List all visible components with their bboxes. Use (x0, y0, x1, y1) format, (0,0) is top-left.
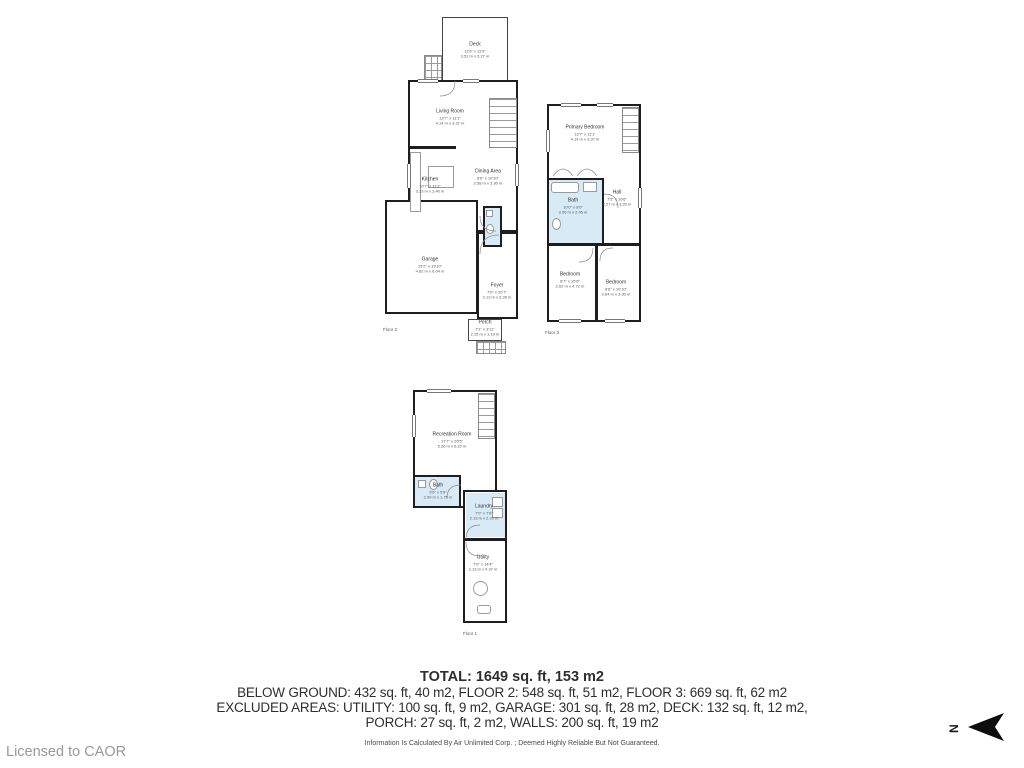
room-dims-imperial: 10'7" x 11'2" (416, 183, 445, 188)
floor1-plan: Recreation Room 17'7" x 20'5" 5.36 m x 6… (405, 385, 510, 643)
room-dims-metric: 2.27 m x 3.20 m (603, 201, 632, 206)
powder-toilet (486, 224, 494, 234)
area-summary: TOTAL: 1649 sq. ft, 153 m2 BELOW GROUND:… (0, 669, 1024, 730)
north-arrow-icon: N (946, 706, 1010, 754)
room-dims-metric: 2.13 m x 6.28 m (483, 294, 512, 299)
disclaimer-text: Information Is Calculated By Air Unlimit… (0, 740, 1024, 747)
floor1-label: Floor 1 (463, 631, 477, 636)
room-label-bath1: Bath 9'6" x 5'9" 2.90 m x 1.75 m (424, 483, 453, 500)
room-dims-imperial: 11'6" x 11'9" (461, 48, 490, 53)
window (605, 319, 625, 323)
floor2-plan: Deck 11'6" x 11'9" 3.51 m x 3.27 m Livin… (383, 14, 533, 356)
porch-steps (476, 341, 506, 354)
interior-wall (463, 538, 507, 541)
room-label-foyer: Foyer 7'0" x 20'7" 2.13 m x 6.28 m (483, 283, 512, 300)
window (559, 319, 581, 323)
floorplan-page: Deck 11'6" x 11'9" 3.51 m x 3.27 m Livin… (0, 0, 1024, 768)
bathtub (551, 182, 579, 193)
window (597, 103, 613, 107)
room-dims-imperial: 13'7" x 11'1" (436, 115, 465, 120)
furnace (473, 581, 488, 596)
powder-sink (486, 210, 493, 217)
room-name: Bedroom (556, 272, 585, 279)
room-dims-metric: 4.14 m x 3.37 m (566, 136, 605, 141)
room-label-garage: Garage 15'2" x 19'10" 4.62 m x 6.04 m (416, 257, 445, 274)
floor1-stairs (478, 393, 495, 439)
floor3-plan: Primary Bedroom 13'7" x 11'1" 4.14 m x 3… (545, 100, 645, 342)
window (515, 164, 519, 186)
room-label-recreation: Recreation Room 17'7" x 20'5" 5.36 m x 6… (433, 432, 472, 449)
room-dims-imperial: 15'2" x 19'10" (416, 263, 445, 268)
window (418, 79, 438, 83)
window (463, 79, 479, 83)
room-label-hall: Hall 7'5" x 10'6" 2.27 m x 3.20 m (603, 190, 632, 207)
room-name: Living Room (436, 109, 465, 116)
room-label-bedroom2: Bedroom 8'8" x 10'10" 2.64 m x 3.30 m (602, 280, 631, 297)
room-name: Recreation Room (433, 432, 472, 439)
window (546, 130, 550, 152)
room-dims-metric: 2.13 m x 2.29 m (470, 515, 499, 520)
room-name: Primary Bedroom (566, 125, 605, 132)
room-dims-metric: 4.62 m x 6.04 m (416, 268, 445, 273)
room-name: Bedroom (602, 280, 631, 287)
room-dims-metric: 4.14 m x 3.37 m (436, 120, 465, 125)
room-name: Dining Area (474, 169, 503, 176)
licensed-text: Licensed to CAOR (6, 744, 126, 760)
window (427, 389, 451, 393)
room-label-living: Living Room 13'7" x 11'1" 4.14 m x 3.37 … (436, 109, 465, 126)
room-dims-metric: 2.13 m x 4.37 m (469, 566, 498, 571)
room-label-deck: Deck 11'6" x 11'9" 3.51 m x 3.27 m (461, 42, 490, 59)
room-label-dining: Dining Area 8'6" x 10'10" 2.58 m x 3.30 … (474, 169, 503, 186)
floor3-label: Floor 3 (545, 330, 559, 335)
summary-total: TOTAL: 1649 sq. ft, 153 m2 (0, 669, 1024, 685)
room-dims-metric: 3.23 m x 3.40 m (416, 188, 445, 193)
window (561, 103, 581, 107)
floor2-stairs (489, 98, 517, 148)
room-label-porch: Porch 7'1" x 3'11" 2.15 m x 1.19 m (471, 320, 500, 337)
room-dims-imperial: 8'8" x 10'10" (602, 286, 631, 291)
summary-line2: BELOW GROUND: 432 sq. ft, 40 m2, FLOOR 2… (0, 685, 1024, 700)
bath-sink (583, 182, 597, 192)
north-label: N (947, 724, 961, 733)
room-dims-metric: 2.58 m x 3.30 m (474, 180, 503, 185)
water-heater (477, 605, 491, 614)
room-label-utility: Utility 7'0" x 14'4" 2.13 m x 4.37 m (469, 555, 498, 572)
room-label-bedroom1: Bedroom 8'7" x 15'6" 2.62 m x 4.72 m (556, 272, 585, 289)
interior-wall (595, 245, 598, 322)
room-dims-metric: 3.51 m x 3.27 m (461, 53, 490, 58)
room-dims-metric: 5.36 m x 6.22 m (433, 443, 472, 448)
room-dims-metric: 2.64 m x 3.30 m (602, 291, 631, 296)
room-dims-metric: 2.90 m x 1.75 m (424, 494, 453, 499)
room-dims-metric: 2.15 m x 1.19 m (471, 331, 500, 336)
floor3-stairs (622, 107, 639, 153)
room-dims-imperial: 8'6" x 10'10" (474, 175, 503, 180)
summary-line4: PORCH: 27 sq. ft, 2 m2, WALLS: 200 sq. f… (0, 715, 1024, 730)
room-label-kitchen: Kitchen 10'7" x 11'2" 3.23 m x 3.40 m (416, 177, 445, 194)
north-arrow: N (946, 706, 1010, 754)
room-label-primary-bedroom: Primary Bedroom 13'7" x 11'1" 4.14 m x 3… (566, 125, 605, 142)
toilet (552, 218, 561, 230)
room-dims-metric: 2.62 m x 4.72 m (556, 283, 585, 288)
floor2-label: Floor 2 (383, 327, 397, 332)
interior-wall (408, 146, 456, 149)
window (407, 164, 411, 188)
window (412, 415, 416, 437)
summary-line3: EXCLUDED AREAS: UTILITY: 100 sq. ft, 9 m… (0, 700, 1024, 715)
room-label-bath3: Bath 10'0" x 8'0" 3.06 m x 2.45 m (559, 198, 588, 215)
room-label-laundry: Laundry 7'0" x 7'6" 2.13 m x 2.29 m (470, 504, 499, 521)
room-dims-metric: 3.06 m x 2.45 m (559, 209, 588, 214)
interior-wall (547, 243, 641, 246)
window (638, 188, 642, 208)
